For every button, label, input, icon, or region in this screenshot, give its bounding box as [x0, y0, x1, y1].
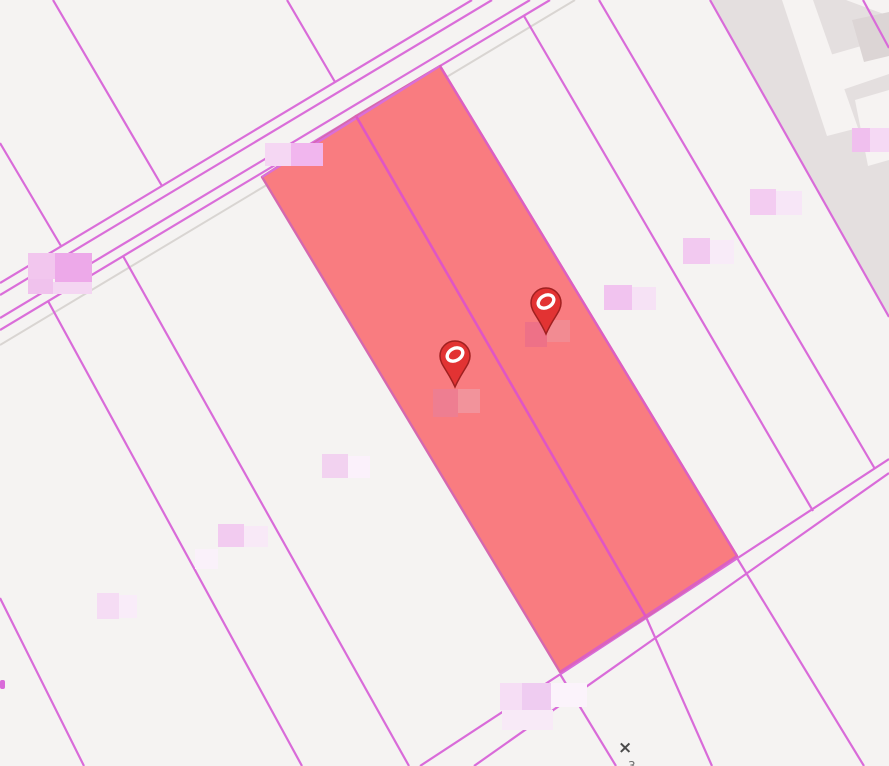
redacted-label-cell	[551, 683, 587, 707]
redacted-label-cell	[348, 456, 370, 478]
redacted-label-cell	[97, 593, 119, 619]
redacted-label-cell	[522, 683, 551, 710]
redacted-label-cell	[244, 526, 268, 547]
map-canvas: ×3	[0, 0, 889, 766]
redacted-label-cell	[28, 279, 53, 294]
redacted-label-cell	[53, 282, 92, 294]
redacted-parcel-label	[195, 549, 218, 569]
redacted-label-cell	[710, 240, 734, 264]
redacted-parcel-label	[683, 238, 734, 264]
survey-number: 3	[628, 759, 636, 766]
map-viewport[interactable]: ×3	[0, 0, 889, 766]
redacted-label-cell	[870, 128, 889, 152]
redacted-parcel-label	[852, 128, 889, 152]
redacted-label-cell	[218, 524, 244, 547]
redacted-label-cell	[683, 238, 710, 264]
redacted-parcel-label	[750, 189, 802, 215]
redacted-label-cell	[55, 253, 92, 283]
redacted-label-cell	[632, 287, 656, 310]
redacted-parcel-label	[604, 285, 656, 310]
redacted-parcel-label	[322, 454, 370, 478]
redacted-label-cell	[265, 143, 291, 166]
redacted-label-cell	[604, 285, 632, 310]
survey-cross-marker: ×	[618, 738, 632, 758]
map-screenshot: ×3	[0, 0, 889, 766]
redacted-parcel-label	[265, 143, 323, 166]
redacted-parcel-label	[433, 389, 480, 417]
redacted-label-cell	[750, 189, 776, 215]
parcel-line-stub	[0, 680, 5, 689]
redacted-parcel-label	[97, 593, 137, 619]
redacted-label-cell	[458, 389, 480, 413]
redacted-label-cell	[119, 595, 137, 618]
redacted-label-cell	[852, 128, 870, 152]
redacted-label-cell	[433, 389, 458, 417]
redacted-parcel-label	[28, 253, 92, 294]
redacted-label-cell	[322, 454, 348, 478]
redacted-label-cell	[291, 143, 323, 166]
redacted-parcel-label	[218, 524, 268, 547]
redacted-label-cell	[776, 191, 802, 215]
redacted-label-cell	[502, 710, 553, 730]
redacted-label-cell	[195, 549, 218, 569]
redacted-label-cell	[28, 253, 55, 279]
redacted-label-cell	[500, 683, 522, 710]
